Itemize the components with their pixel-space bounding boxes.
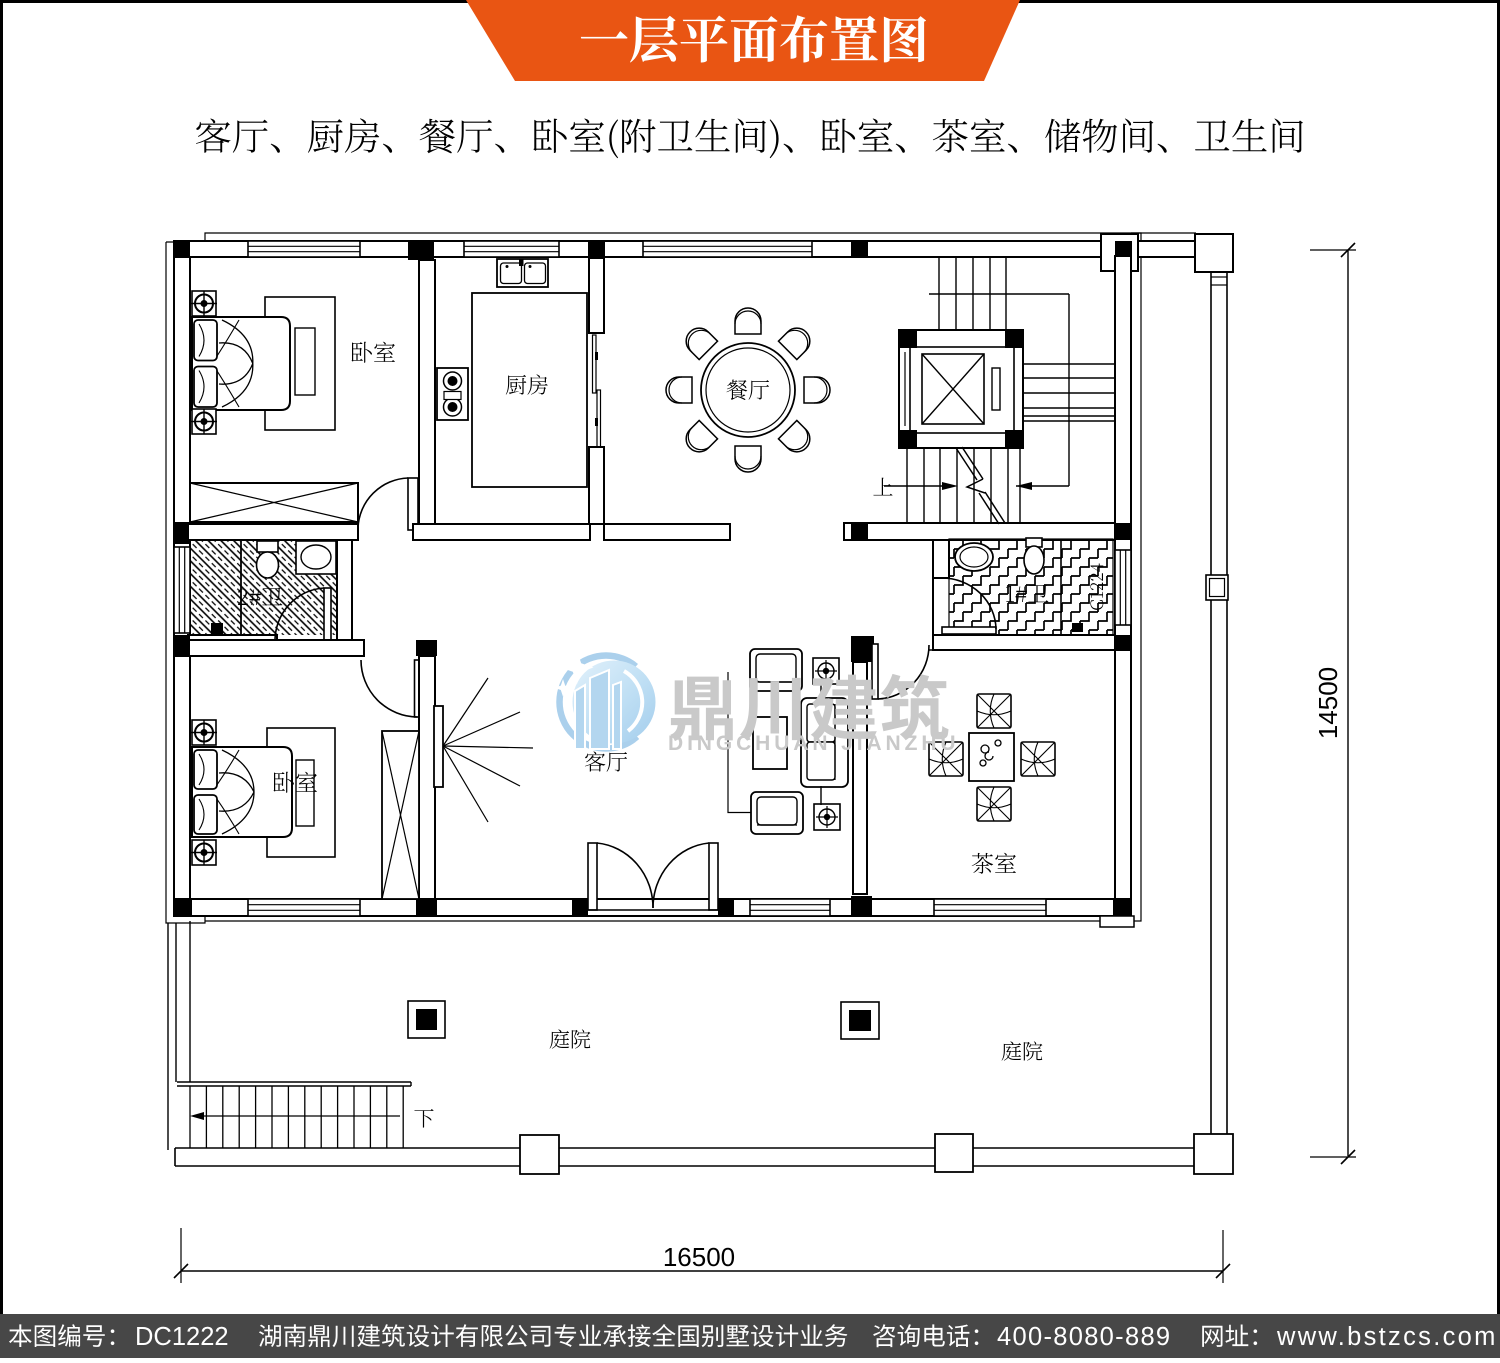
svg-text:DINGCHUAN JIANZHU: DINGCHUAN JIANZHU (668, 732, 959, 755)
svg-text:14500: 14500 (1313, 667, 1343, 739)
svg-text:400-8080-889: 400-8080-889 (997, 1323, 1171, 1351)
svg-text:16500: 16500 (663, 1242, 735, 1272)
svg-text:DC1222: DC1222 (135, 1323, 229, 1351)
svg-text:www.bstzcs.com: www.bstzcs.com (1276, 1323, 1498, 1351)
